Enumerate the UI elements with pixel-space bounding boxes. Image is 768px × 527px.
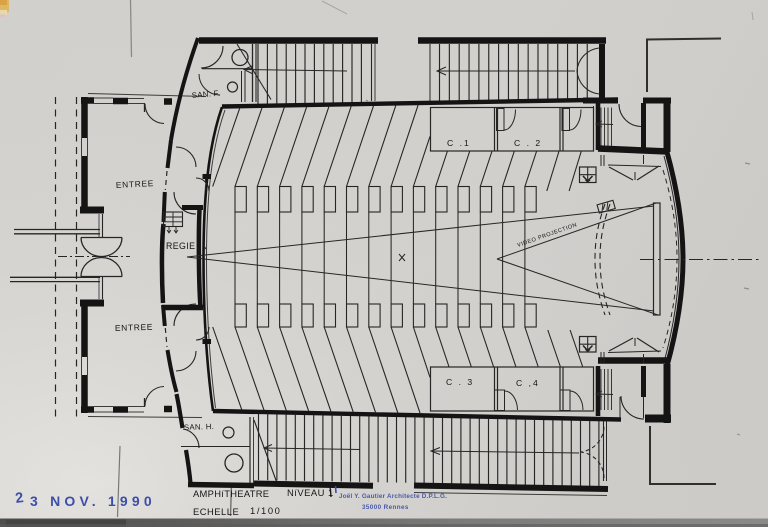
svg-text:1/100: 1/100 bbox=[250, 505, 281, 516]
svg-text:C . 3: C . 3 bbox=[446, 377, 474, 387]
svg-text:Joël Y. Gautier Architecte D.P: Joël Y. Gautier Architecte D.P.L.G. bbox=[339, 493, 447, 500]
svg-text:3 NOV. 1990: 3 NOV. 1990 bbox=[30, 493, 156, 509]
svg-text:35000 Rennes: 35000 Rennes bbox=[362, 504, 409, 511]
svg-text:C . 2: C . 2 bbox=[514, 138, 542, 148]
svg-text:ECHELLE: ECHELLE bbox=[193, 506, 239, 517]
svg-text:REGIE: REGIE bbox=[166, 241, 195, 251]
svg-text:C .1: C .1 bbox=[447, 138, 471, 148]
svg-text:ENTREE: ENTREE bbox=[115, 322, 153, 333]
svg-text:C ,4: C ,4 bbox=[516, 378, 540, 388]
svg-text:NíVEAU 1: NíVEAU 1 bbox=[287, 487, 334, 498]
svg-text:ENTREE: ENTREE bbox=[116, 178, 155, 190]
svg-text:AMPHíTHEATRE: AMPHíTHEATRE bbox=[193, 488, 269, 499]
svg-text:SAN. H.: SAN. H. bbox=[184, 422, 215, 432]
